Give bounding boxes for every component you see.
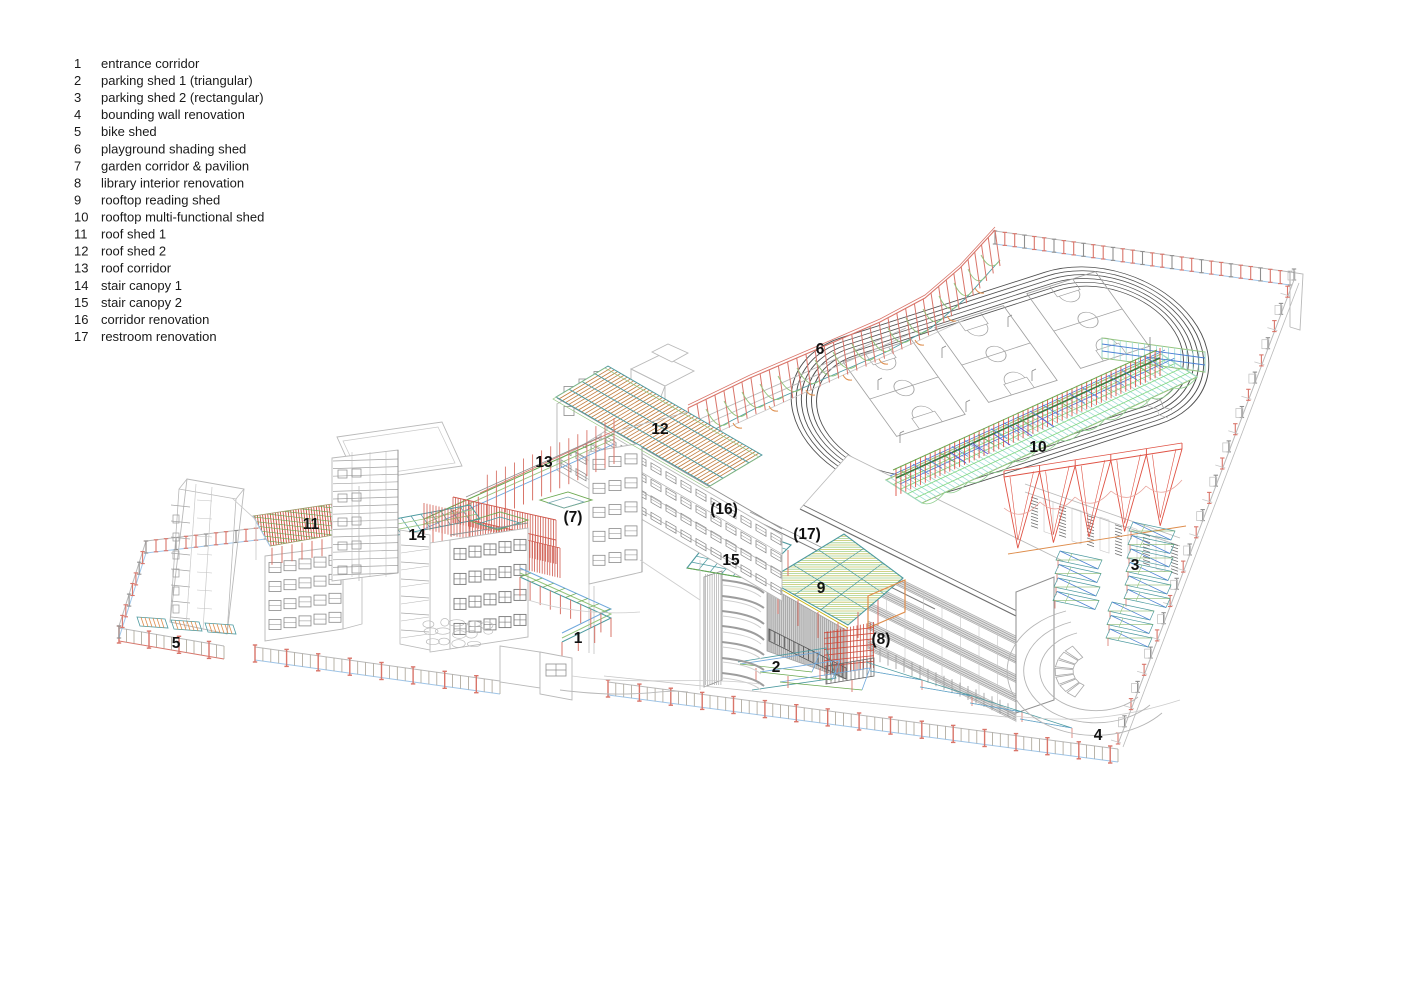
svg-text:3: 3 — [74, 90, 81, 105]
svg-text:entrance corridor: entrance corridor — [101, 56, 200, 71]
svg-text:10: 10 — [74, 210, 88, 225]
svg-text:1: 1 — [74, 56, 81, 71]
svg-text:12: 12 — [651, 421, 668, 438]
svg-text:17: 17 — [74, 329, 88, 344]
svg-text:stair canopy 1: stair canopy 1 — [101, 278, 182, 293]
svg-text:roof corridor: roof corridor — [101, 261, 172, 276]
svg-text:parking shed 1 (triangular): parking shed 1 (triangular) — [101, 73, 253, 88]
svg-text:3: 3 — [1131, 557, 1140, 574]
svg-text:11: 11 — [303, 516, 320, 533]
svg-text:rooftop multi-functional shed: rooftop multi-functional shed — [101, 210, 264, 225]
svg-text:9: 9 — [74, 193, 81, 208]
svg-text:roof shed 2: roof shed 2 — [101, 244, 166, 259]
svg-text:rooftop reading shed: rooftop reading shed — [101, 193, 220, 208]
svg-text:8: 8 — [74, 175, 81, 190]
svg-text:10: 10 — [1029, 439, 1046, 456]
svg-text:restroom renovation: restroom renovation — [101, 329, 217, 344]
svg-text:4: 4 — [74, 107, 81, 122]
svg-text:(8): (8) — [872, 631, 891, 648]
svg-text:5: 5 — [172, 635, 181, 652]
svg-text:(7): (7) — [564, 509, 583, 526]
svg-text:(17): (17) — [793, 526, 821, 543]
svg-text:roof shed 1: roof shed 1 — [101, 227, 166, 242]
svg-text:14: 14 — [74, 278, 88, 293]
svg-text:5: 5 — [74, 124, 81, 139]
svg-text:2: 2 — [74, 73, 81, 88]
svg-text:11: 11 — [74, 227, 88, 242]
svg-text:13: 13 — [535, 454, 553, 471]
svg-text:stair canopy 2: stair canopy 2 — [101, 295, 182, 310]
svg-text:garden corridor & pavilion: garden corridor & pavilion — [101, 158, 249, 173]
svg-text:14: 14 — [408, 527, 426, 544]
svg-text:1: 1 — [574, 630, 583, 647]
svg-text:4: 4 — [1094, 727, 1103, 744]
svg-text:16: 16 — [74, 312, 88, 327]
svg-text:bounding wall renovation: bounding wall renovation — [101, 107, 245, 122]
svg-text:13: 13 — [74, 261, 88, 276]
svg-text:6: 6 — [74, 141, 81, 156]
svg-text:playground shading shed: playground shading shed — [101, 141, 246, 156]
svg-text:corridor renovation: corridor renovation — [101, 312, 209, 327]
svg-text:parking shed 2 (rectangular): parking shed 2 (rectangular) — [101, 90, 264, 105]
svg-text:6: 6 — [816, 341, 825, 358]
svg-text:15: 15 — [722, 552, 740, 569]
svg-text:12: 12 — [74, 244, 88, 259]
svg-text:bike shed: bike shed — [101, 124, 157, 139]
svg-text:7: 7 — [74, 158, 81, 173]
svg-text:library interior renovation: library interior renovation — [101, 175, 244, 190]
svg-text:2: 2 — [772, 659, 781, 676]
svg-text:15: 15 — [74, 295, 88, 310]
svg-text:9: 9 — [817, 580, 826, 597]
svg-text:(16): (16) — [710, 501, 738, 518]
